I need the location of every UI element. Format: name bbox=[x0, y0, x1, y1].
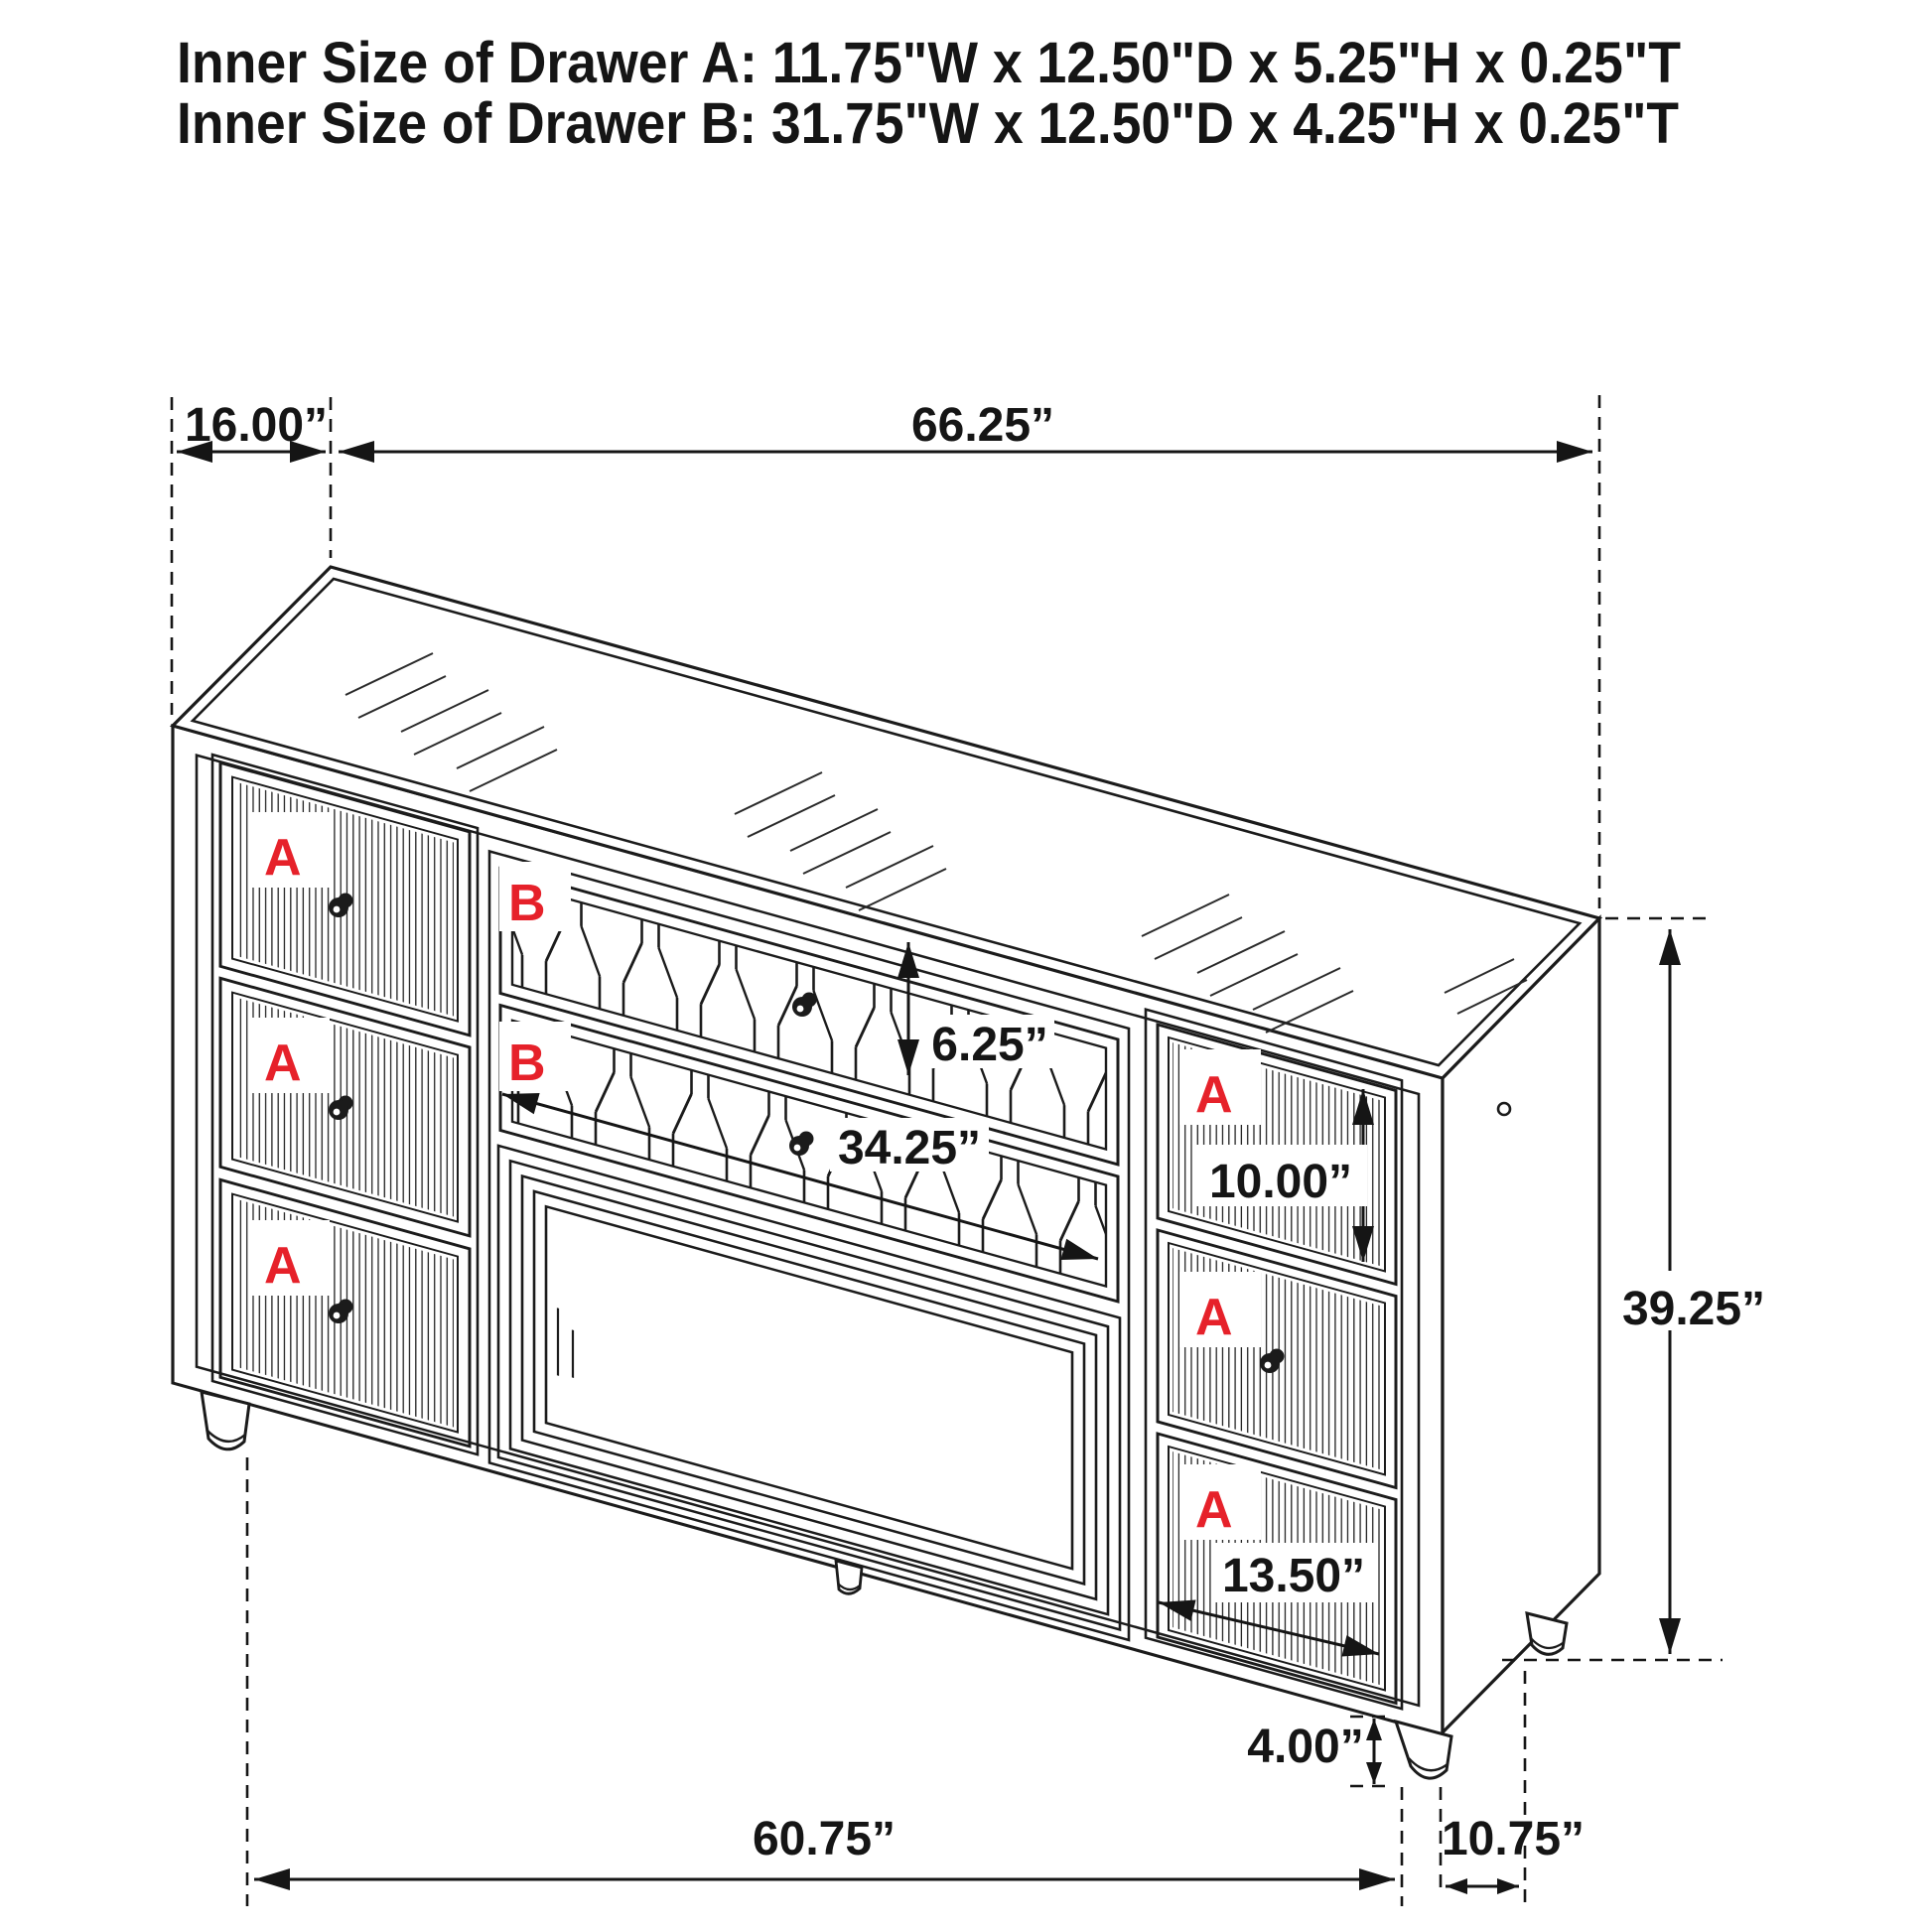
svg-text:10.75”: 10.75” bbox=[1442, 1813, 1585, 1865]
svg-text:A: A bbox=[1195, 1289, 1233, 1346]
svg-text:66.25”: 66.25” bbox=[911, 399, 1054, 452]
svg-text:B: B bbox=[508, 1035, 546, 1092]
svg-text:B: B bbox=[508, 875, 546, 932]
svg-text:A: A bbox=[1195, 1481, 1233, 1539]
svg-text:A: A bbox=[1195, 1066, 1233, 1124]
svg-text:4.00”: 4.00” bbox=[1247, 1721, 1363, 1773]
svg-text:A: A bbox=[264, 1237, 302, 1295]
svg-text:10.00”: 10.00” bbox=[1209, 1156, 1352, 1208]
svg-text:A: A bbox=[264, 829, 302, 887]
svg-text:Inner Size of Drawer B: 31.75": Inner Size of Drawer B: 31.75"W x 12.50"… bbox=[177, 91, 1679, 156]
svg-text:39.25”: 39.25” bbox=[1622, 1283, 1765, 1335]
svg-text:Inner Size of Drawer A: 11.75": Inner Size of Drawer A: 11.75"W x 12.50"… bbox=[177, 31, 1681, 95]
svg-text:16.00”: 16.00” bbox=[185, 399, 328, 452]
svg-text:34.25”: 34.25” bbox=[838, 1122, 981, 1174]
svg-text:6.25”: 6.25” bbox=[931, 1019, 1047, 1071]
svg-text:A: A bbox=[264, 1035, 302, 1092]
svg-text:13.50”: 13.50” bbox=[1222, 1550, 1365, 1602]
svg-text:60.75”: 60.75” bbox=[753, 1813, 896, 1865]
